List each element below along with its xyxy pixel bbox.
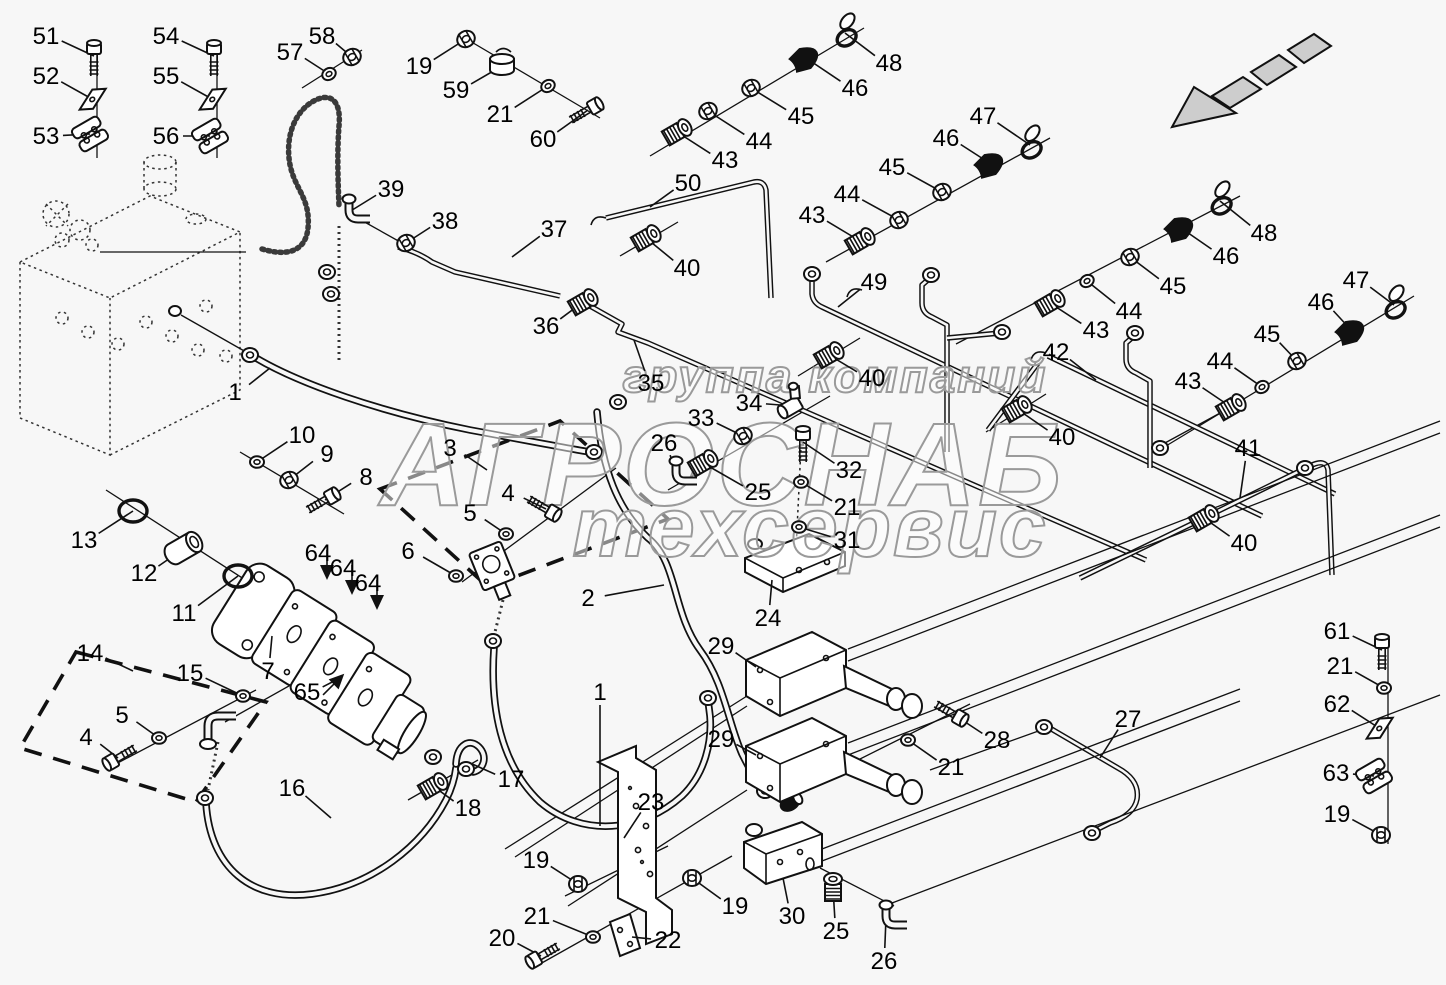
callout-43: 43 <box>712 147 739 174</box>
part-cone-icon-46 <box>1332 314 1369 349</box>
part-washer-icon-31 <box>792 521 806 533</box>
callout-55: 55 <box>153 63 180 90</box>
part-washer-icon-21 <box>586 931 600 943</box>
callout-29: 29 <box>708 726 735 753</box>
callout-25: 25 <box>823 918 850 945</box>
callout-60: 60 <box>530 126 557 153</box>
part-elbow-icon-26 <box>880 901 908 926</box>
part-cap-icon-59 <box>490 49 514 76</box>
callout-31: 31 <box>834 527 861 554</box>
part-fitting-icon-43 <box>844 226 877 256</box>
callout-34: 34 <box>736 390 763 417</box>
callout-21: 21 <box>524 903 551 930</box>
callout-43: 43 <box>1175 368 1202 395</box>
callout-44: 44 <box>746 128 773 155</box>
callout-5: 5 <box>115 702 128 729</box>
callout-1: 1 <box>228 379 241 406</box>
part-washer-icon-21 <box>794 476 808 488</box>
leader-line-14 <box>106 658 133 671</box>
part-washer-icon-21 <box>1377 682 1391 694</box>
callout-25: 25 <box>745 479 772 506</box>
exploded-parts-diagram: группа компаний АГРОСНАБ техсервис 51525… <box>0 0 1446 985</box>
part-nut-icon-9 <box>277 469 301 492</box>
part-washer-icon-21 <box>901 734 915 746</box>
part-washer-icon-21 <box>539 77 557 94</box>
callout-4: 4 <box>501 480 514 507</box>
callout-11: 11 <box>172 600 197 627</box>
callout-9: 9 <box>320 441 333 468</box>
callout-27: 27 <box>1115 706 1142 733</box>
callout-45: 45 <box>788 103 815 130</box>
part-ring-icon-48 <box>1202 177 1242 217</box>
part-plate-icon-55 <box>194 84 231 115</box>
callout-19: 19 <box>1324 801 1351 828</box>
callout-15: 15 <box>177 660 204 687</box>
callout-38: 38 <box>432 208 459 235</box>
part-washer-icon-5 <box>499 528 513 540</box>
callout-19: 19 <box>406 53 433 80</box>
bracket-23 <box>598 746 672 944</box>
callout-26: 26 <box>651 430 678 457</box>
callout-21: 21 <box>487 101 514 128</box>
leader-line-2 <box>605 585 664 596</box>
callout-64: 64 <box>305 540 332 567</box>
callout-47: 47 <box>1343 267 1370 294</box>
callout-44: 44 <box>1116 298 1143 325</box>
callout-37: 37 <box>541 216 568 243</box>
callout-62: 62 <box>1324 691 1351 718</box>
valve-30 <box>744 822 822 884</box>
callout-10: 10 <box>289 422 316 449</box>
leader-line-27 <box>1100 730 1118 758</box>
part-fitting-icon-25 <box>824 873 842 901</box>
callout-22: 22 <box>655 927 682 954</box>
flange-block <box>469 541 521 604</box>
dotted-hose <box>262 97 339 252</box>
part-washer-icon-10 <box>250 456 264 468</box>
callout-12: 12 <box>131 560 158 587</box>
callout-51: 51 <box>33 23 60 50</box>
part-nut-icon-45 <box>739 77 763 100</box>
part-bolt-icon-61 <box>1375 634 1389 670</box>
part-washer-icon-15 <box>236 690 250 702</box>
part-nut-icon-19 <box>683 870 701 886</box>
suction-elbow <box>200 716 236 749</box>
leader-line-16 <box>305 796 331 818</box>
part-fitting-icon-43 <box>1215 392 1248 422</box>
callout-49: 49 <box>861 269 888 296</box>
callout-43: 43 <box>1083 317 1110 344</box>
part-washer-icon-44 <box>1253 378 1271 395</box>
callout-59: 59 <box>443 77 470 104</box>
part-bolt-icon-4 <box>101 742 139 772</box>
callout-54: 54 <box>153 23 180 50</box>
callout-28: 28 <box>984 727 1011 754</box>
part-washer-icon-57 <box>320 65 338 82</box>
part-nut-icon-19 <box>569 876 587 892</box>
part-washer-icon-6 <box>449 570 463 582</box>
part-nut-icon-19 <box>454 28 478 51</box>
callout-40: 40 <box>1231 530 1258 557</box>
callout-65: 65 <box>294 679 321 706</box>
callout-46: 46 <box>1213 243 1240 270</box>
callout-40: 40 <box>859 365 886 392</box>
part-washer-icon-5 <box>152 732 166 744</box>
callout-21: 21 <box>834 494 861 521</box>
callout-29: 29 <box>708 633 735 660</box>
callout-20: 20 <box>489 925 516 952</box>
callout-57: 57 <box>277 39 304 66</box>
callout-32: 32 <box>836 457 863 484</box>
callout-56: 56 <box>153 123 180 150</box>
callout-33: 33 <box>688 405 715 432</box>
callout-40: 40 <box>1049 424 1076 451</box>
callout-46: 46 <box>933 125 960 152</box>
callout-46: 46 <box>842 75 869 102</box>
callout-14: 14 <box>77 640 104 667</box>
callout-17: 17 <box>498 766 525 793</box>
callout-43: 43 <box>799 202 826 229</box>
callout-52: 52 <box>33 63 60 90</box>
leader-line-37 <box>512 236 540 257</box>
callout-16: 16 <box>279 775 306 802</box>
callout-30: 30 <box>779 903 806 930</box>
callout-18: 18 <box>455 795 482 822</box>
part-bolt-icon-54 <box>207 40 221 76</box>
callout-63: 63 <box>1323 760 1350 787</box>
part-coupling-icon-12 <box>161 529 206 568</box>
part-fitting-icon-43 <box>661 117 694 147</box>
callout-44: 44 <box>1207 348 1234 375</box>
callout-44: 44 <box>834 181 861 208</box>
callout-26: 26 <box>871 948 898 975</box>
callout-19: 19 <box>523 847 550 874</box>
callout-4: 4 <box>79 724 92 751</box>
callout-19: 19 <box>722 893 749 920</box>
callout-6: 6 <box>401 538 414 565</box>
callout-41: 41 <box>1235 435 1262 462</box>
leader-line-1 <box>249 368 270 385</box>
callout-21: 21 <box>1327 653 1354 680</box>
callout-23: 23 <box>638 789 665 816</box>
callout-50: 50 <box>675 170 702 197</box>
callout-53: 53 <box>33 123 60 150</box>
part-nut-icon-44 <box>887 209 911 232</box>
callout-47: 47 <box>970 103 997 130</box>
part-plate-icon-52 <box>74 84 111 115</box>
callout-58: 58 <box>309 23 336 50</box>
callout-42: 42 <box>1043 339 1070 366</box>
callout-8: 8 <box>359 464 372 491</box>
callout-48: 48 <box>876 50 903 77</box>
callout-40: 40 <box>674 255 701 282</box>
part-nut-icon-19 <box>1372 827 1390 843</box>
callout-36: 36 <box>533 313 560 340</box>
part-fitting-icon-43 <box>1034 288 1067 318</box>
hydraulic-tank <box>20 155 246 455</box>
watermark-line3: техсервис <box>572 480 1047 574</box>
valve-block-29a <box>746 632 922 718</box>
part-cone-icon-46 <box>1161 211 1198 246</box>
callout-45: 45 <box>1254 321 1281 348</box>
strap-22 <box>610 914 640 956</box>
leader-line-41 <box>1240 461 1245 498</box>
part-bolt-icon-51 <box>87 40 101 76</box>
parts-diagram-page: группа компаний АГРОСНАБ техсервис 51525… <box>0 0 1446 985</box>
gear-pump <box>202 558 453 766</box>
valve-block-29b <box>746 718 922 804</box>
leader-line-30 <box>783 878 788 903</box>
part-nut-icon-44 <box>696 100 720 123</box>
callout-21: 21 <box>938 754 965 781</box>
part-nut-icon-45 <box>930 181 954 204</box>
callout-7: 7 <box>261 658 274 685</box>
callout-61: 61 <box>1324 618 1351 645</box>
callout-46: 46 <box>1308 289 1335 316</box>
callout-48: 48 <box>1251 220 1278 247</box>
watermark: группа компаний АГРОСНАБ техсервис <box>377 350 1063 574</box>
callout-64: 64 <box>330 555 357 582</box>
callout-3: 3 <box>443 435 456 462</box>
callout-13: 13 <box>71 527 98 554</box>
callout-35: 35 <box>638 370 665 397</box>
callout-2: 2 <box>581 585 594 612</box>
callout-39: 39 <box>378 176 405 203</box>
callout-45: 45 <box>879 154 906 181</box>
callout-64: 64 <box>355 570 382 597</box>
callout-1: 1 <box>593 679 606 706</box>
callout-45: 45 <box>1160 273 1187 300</box>
callout-24: 24 <box>755 605 782 632</box>
callout-5: 5 <box>463 500 476 527</box>
direction-arrow-icon <box>1172 34 1331 127</box>
